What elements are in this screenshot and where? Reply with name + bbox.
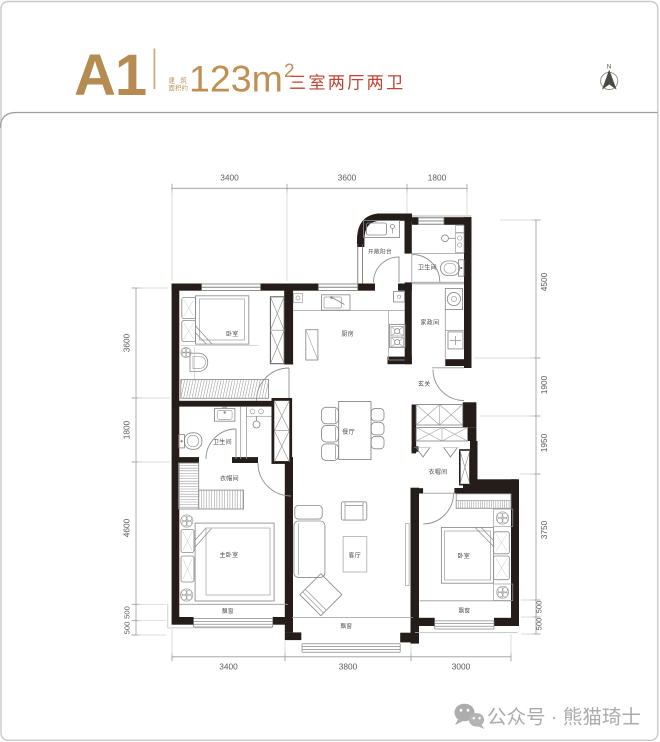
- svg-text:123m: 123m: [189, 58, 283, 100]
- svg-text:餐厅: 餐厅: [342, 428, 355, 436]
- svg-text:开敞阳台: 开敞阳台: [368, 248, 392, 256]
- svg-text:500: 500: [535, 618, 544, 631]
- svg-text:3400: 3400: [220, 173, 239, 183]
- svg-text:公众号 · 熊猫琦士: 公众号 · 熊猫琦士: [487, 707, 641, 729]
- svg-text:500: 500: [123, 622, 132, 635]
- svg-text:面积约: 面积约: [169, 83, 189, 92]
- svg-text:主卧室: 主卧室: [220, 551, 239, 559]
- svg-text:500: 500: [123, 606, 132, 619]
- svg-text:1950: 1950: [539, 433, 549, 452]
- svg-text:家政间: 家政间: [421, 319, 440, 327]
- svg-text:3800: 3800: [339, 662, 358, 672]
- svg-text:飘窗: 飘窗: [341, 622, 353, 630]
- svg-text:卧室: 卧室: [226, 330, 239, 338]
- svg-text:客厅: 客厅: [349, 552, 362, 560]
- svg-text:4500: 4500: [539, 272, 549, 291]
- svg-text:N: N: [607, 64, 612, 71]
- svg-text:飘窗: 飘窗: [222, 607, 234, 615]
- svg-text:厨房: 厨房: [342, 330, 355, 338]
- svg-text:1900: 1900: [539, 375, 549, 394]
- svg-text:4600: 4600: [122, 518, 132, 537]
- svg-text:卧室: 卧室: [458, 552, 471, 560]
- svg-text:3600: 3600: [122, 333, 132, 352]
- svg-text:玄关: 玄关: [418, 380, 431, 388]
- svg-text:1800: 1800: [428, 173, 447, 183]
- svg-text:衣帽间: 衣帽间: [220, 475, 239, 483]
- svg-text:飘窗: 飘窗: [459, 607, 471, 615]
- svg-text:3750: 3750: [539, 520, 549, 539]
- svg-text:卫生间: 卫生间: [213, 438, 232, 446]
- svg-text:3600: 3600: [338, 173, 357, 183]
- svg-text:A1: A1: [74, 43, 146, 108]
- svg-text:三室两厅两卫: 三室两厅两卫: [289, 73, 405, 93]
- svg-text:3400: 3400: [219, 662, 238, 672]
- svg-text:1800: 1800: [122, 420, 132, 439]
- svg-text:卫生间: 卫生间: [418, 263, 437, 271]
- svg-text:500: 500: [535, 601, 544, 614]
- svg-text:衣帽间: 衣帽间: [429, 468, 448, 476]
- svg-text:3000: 3000: [452, 662, 471, 672]
